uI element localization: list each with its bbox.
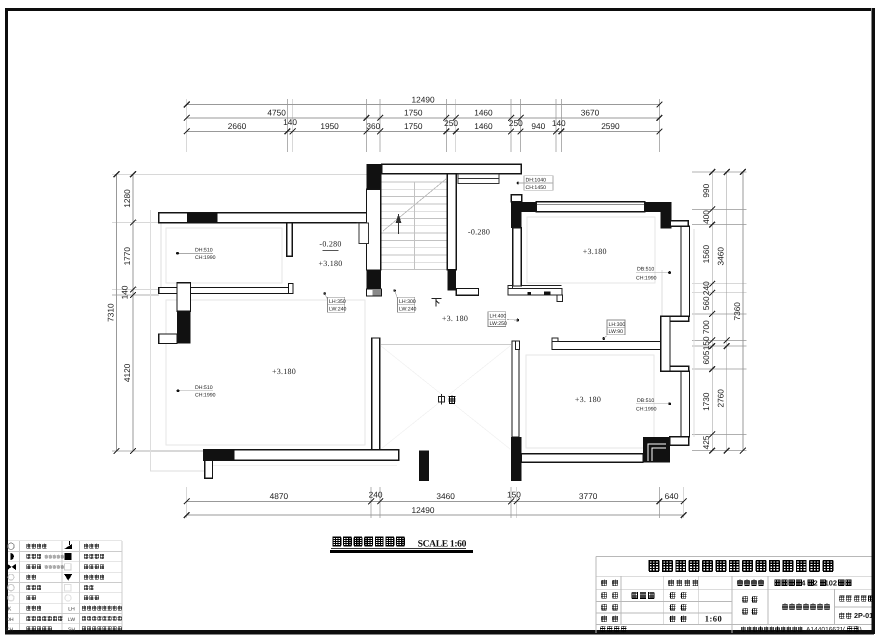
svg-text:DB:510: DB:510 bbox=[637, 267, 654, 273]
svg-text:940: 940 bbox=[531, 121, 545, 131]
svg-text:DB:510: DB:510 bbox=[637, 398, 654, 404]
svg-text:240: 240 bbox=[701, 281, 711, 295]
svg-text:4870: 4870 bbox=[270, 491, 289, 501]
svg-text:LH: LH bbox=[68, 607, 75, 613]
svg-text:1460: 1460 bbox=[474, 121, 493, 131]
svg-text:LH:350: LH:350 bbox=[329, 299, 346, 305]
svg-text:DH:1040: DH:1040 bbox=[526, 177, 547, 183]
svg-text:): ) bbox=[860, 627, 862, 634]
svg-text:+3.180: +3.180 bbox=[583, 247, 607, 256]
svg-text:250: 250 bbox=[509, 118, 523, 128]
svg-text:400: 400 bbox=[701, 210, 711, 224]
svg-text:1950: 1950 bbox=[320, 121, 339, 131]
svg-text:12490: 12490 bbox=[411, 505, 434, 515]
svg-text:1770: 1770 bbox=[122, 247, 132, 266]
svg-text:LH:300: LH:300 bbox=[399, 299, 416, 305]
svg-text:7360: 7360 bbox=[732, 302, 742, 321]
svg-text:+3. 180: +3. 180 bbox=[442, 314, 468, 323]
svg-text:250: 250 bbox=[444, 118, 458, 128]
svg-text:CH:1990: CH:1990 bbox=[636, 276, 657, 282]
svg-text:640: 640 bbox=[665, 491, 679, 501]
svg-text:CH:1990: CH:1990 bbox=[195, 255, 216, 261]
svg-text:+3. 180: +3. 180 bbox=[575, 395, 601, 404]
svg-text:12490: 12490 bbox=[412, 94, 435, 104]
svg-text:990: 990 bbox=[701, 183, 711, 197]
svg-text:DH:510: DH:510 bbox=[195, 248, 213, 254]
svg-text:140: 140 bbox=[552, 118, 566, 128]
svg-text:1460: 1460 bbox=[474, 107, 493, 117]
svg-text:SH: SH bbox=[68, 627, 75, 633]
svg-text:700: 700 bbox=[701, 320, 711, 334]
svg-text:150: 150 bbox=[701, 336, 711, 350]
svg-text:560: 560 bbox=[701, 296, 711, 310]
svg-text:2760: 2760 bbox=[716, 389, 726, 408]
svg-text:A144016621: A144016621 bbox=[806, 627, 844, 634]
svg-text:2590: 2590 bbox=[601, 121, 620, 131]
svg-text:4120: 4120 bbox=[122, 363, 132, 382]
svg-text:DH: DH bbox=[6, 617, 14, 623]
svg-text:3460: 3460 bbox=[436, 491, 455, 501]
svg-text:K: K bbox=[8, 607, 12, 613]
svg-text:1280: 1280 bbox=[122, 189, 132, 208]
svg-text:LW:90: LW:90 bbox=[609, 329, 624, 335]
svg-text:LH:400: LH:400 bbox=[490, 314, 507, 320]
svg-text:140: 140 bbox=[120, 285, 130, 299]
svg-text:605: 605 bbox=[701, 350, 711, 364]
svg-text:360: 360 bbox=[366, 121, 380, 131]
svg-text:3460: 3460 bbox=[716, 247, 726, 266]
svg-text:LW: LW bbox=[68, 617, 75, 623]
svg-text:LW:250: LW:250 bbox=[490, 321, 508, 327]
svg-text:DH:510: DH:510 bbox=[195, 385, 213, 391]
svg-text:3670: 3670 bbox=[581, 107, 600, 117]
svg-text:1750: 1750 bbox=[404, 121, 423, 131]
svg-text:+3.180: +3.180 bbox=[318, 259, 342, 268]
svg-text:4750: 4750 bbox=[267, 107, 286, 117]
svg-text:102: 102 bbox=[825, 578, 837, 587]
svg-text:CH:1990: CH:1990 bbox=[195, 392, 216, 398]
svg-text:LW:240: LW:240 bbox=[399, 307, 417, 313]
svg-text:7310: 7310 bbox=[106, 303, 116, 322]
svg-text:3770: 3770 bbox=[579, 491, 598, 501]
svg-text:CH: CH bbox=[6, 627, 14, 633]
svg-text:2660: 2660 bbox=[228, 121, 247, 131]
svg-text:2: 2 bbox=[813, 578, 817, 587]
svg-text:1:60: 1:60 bbox=[705, 614, 723, 624]
svg-text:CH:1450: CH:1450 bbox=[526, 185, 547, 191]
svg-text:2P-01: 2P-01 bbox=[854, 611, 873, 620]
svg-text:LH:300: LH:300 bbox=[609, 322, 626, 328]
svg-text:+3.180: +3.180 bbox=[272, 367, 296, 376]
svg-text:-0.280: -0.280 bbox=[319, 240, 341, 249]
svg-text:1560: 1560 bbox=[701, 244, 711, 263]
svg-text:425: 425 bbox=[701, 435, 711, 449]
svg-text:150: 150 bbox=[507, 490, 521, 500]
svg-text:1750: 1750 bbox=[404, 107, 423, 117]
svg-text:LW:240: LW:240 bbox=[329, 307, 347, 313]
svg-text:CH:1990: CH:1990 bbox=[636, 407, 657, 413]
svg-text:1730: 1730 bbox=[701, 392, 711, 411]
svg-text:-0.280: -0.280 bbox=[468, 227, 490, 236]
svg-text:240: 240 bbox=[369, 490, 383, 500]
svg-text:140: 140 bbox=[283, 117, 297, 127]
